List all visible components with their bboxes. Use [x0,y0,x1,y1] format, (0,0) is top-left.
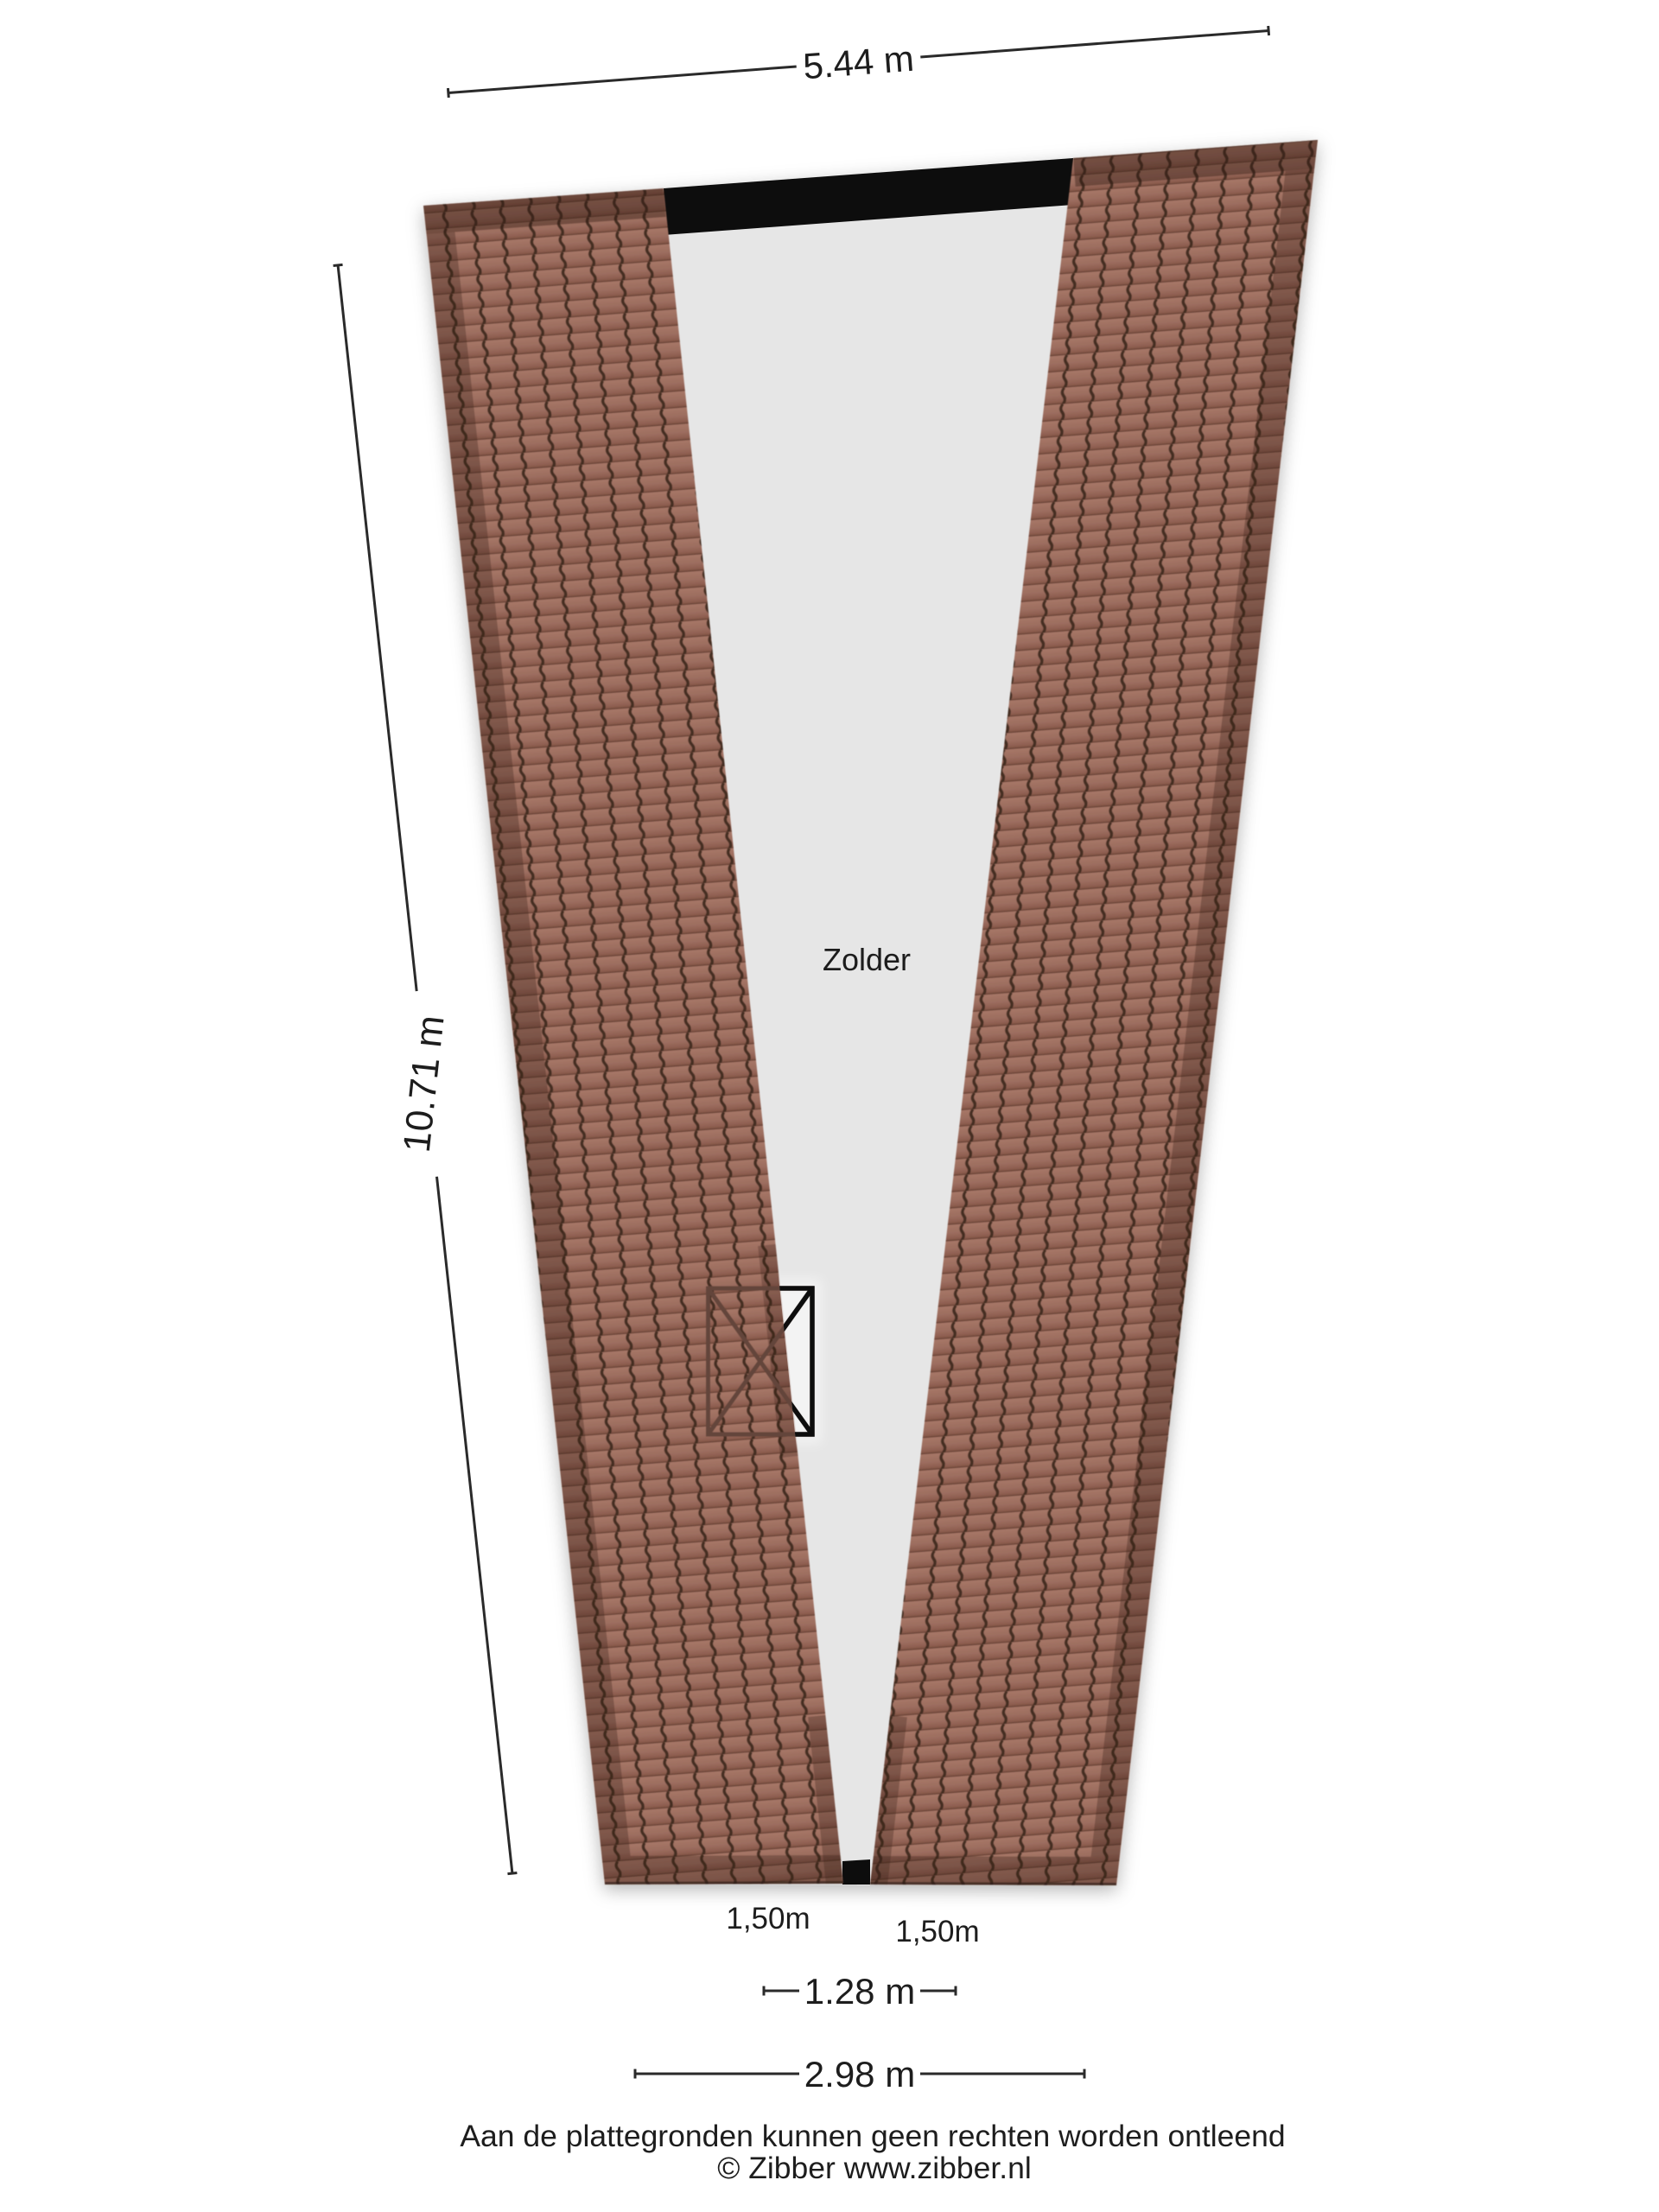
svg-text:Zolder: Zolder [823,942,911,977]
svg-text:Aan de plattegronden kunnen ge: Aan de plattegronden kunnen geen rechten… [460,2119,1285,2153]
svg-text:© Zibber www.zibber.nl: © Zibber www.zibber.nl [717,2151,1032,2185]
svg-text:5.44 m: 5.44 m [802,38,916,87]
svg-text:1,50m: 1,50m [895,1915,979,1948]
svg-text:1,50m: 1,50m [726,1902,810,1935]
svg-text:1.28 m: 1.28 m [804,1971,915,2012]
svg-text:2.98 m: 2.98 m [804,2054,915,2094]
